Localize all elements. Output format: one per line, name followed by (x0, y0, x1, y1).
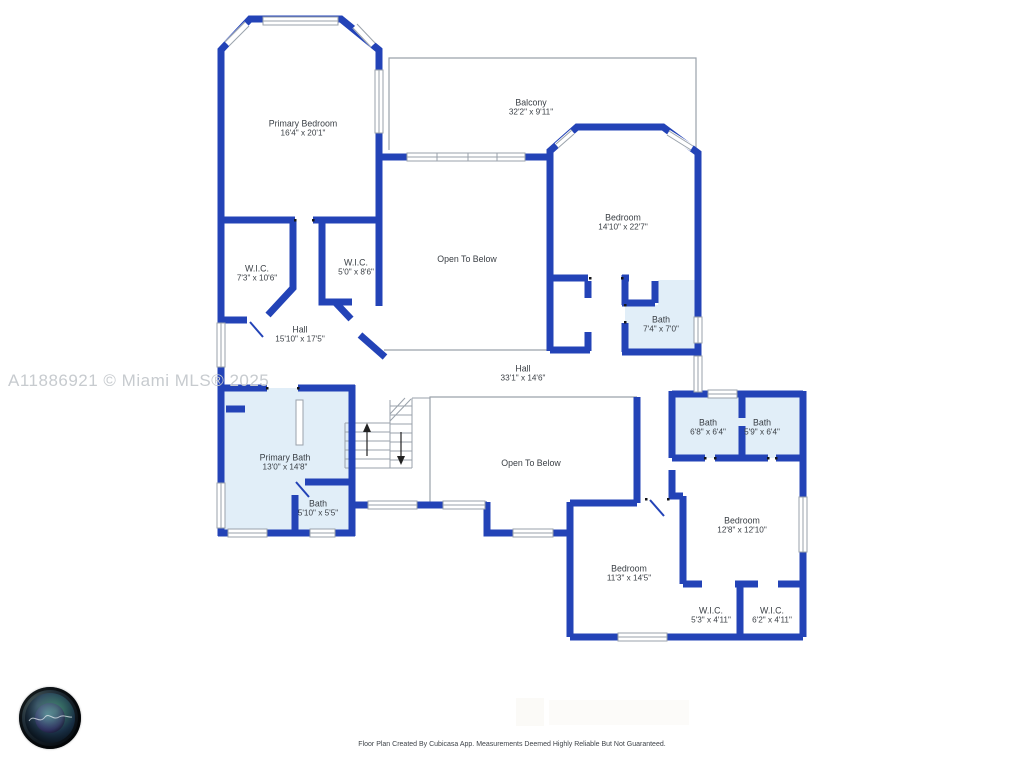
room-label-bath-59: Bath 5'9" x 6'4" (744, 417, 780, 437)
room-label-bedroom-bottom: Bedroom 11'3" x 14'5" (607, 563, 651, 583)
footer-disclaimer: Floor Plan Created By Cubicasa App. Meas… (0, 741, 1024, 748)
room-label-bath-510: Bath 5'10" x 5'5" (298, 498, 338, 518)
open-below-lower-edge (430, 397, 637, 502)
room-label-balcony: Balcony 32'2" x 9'11" (509, 97, 553, 117)
room-label-primary-bedroom: Primary Bedroom 16'4" x 20'1" (269, 118, 337, 138)
room-label-open-to-below-lower: Open To Below (501, 458, 561, 468)
mls-watermark: A11886921 © Miami MLS® 2025 (8, 371, 269, 391)
room-label-open-to-below-upper: Open To Below (437, 254, 497, 264)
faint-watermark-text (549, 700, 689, 725)
camera-lens-logo (19, 687, 81, 749)
room-label-wic-53: W.I.C. 5'3" x 4'11" (691, 605, 731, 625)
room-label-primary-bath: Primary Bath 13'0" x 14'8" (260, 452, 311, 472)
shower-partition (296, 400, 303, 445)
staircase (345, 398, 430, 468)
wic-door-leaf (250, 322, 263, 337)
room-label-bedroom-right: Bedroom 12'8" x 12'10" (717, 515, 766, 535)
room-label-bath-68: Bath 6'8" x 6'4" (690, 417, 726, 437)
logo-signature-icon (19, 687, 81, 749)
bedroom-door-leaf (650, 500, 664, 516)
room-label-hall-left: Hall 15'10" x 17'5" (275, 324, 324, 344)
room-label-hall-center: Hall 33'1" x 14'6" (501, 363, 546, 383)
room-label-wic-62: W.I.C. 6'2" x 4'11" (752, 605, 792, 625)
room-label-wic-50: W.I.C. 5'0" x 8'6" (338, 257, 374, 277)
room-label-wic-73: W.I.C. 7'3" x 10'6" (237, 263, 277, 283)
faint-watermark-icon (516, 698, 544, 726)
room-label-bedroom-topright: Bedroom 14'10" x 22'7" (598, 212, 647, 232)
room-label-bath-74: Bath 7'4" x 7'0" (643, 314, 679, 334)
